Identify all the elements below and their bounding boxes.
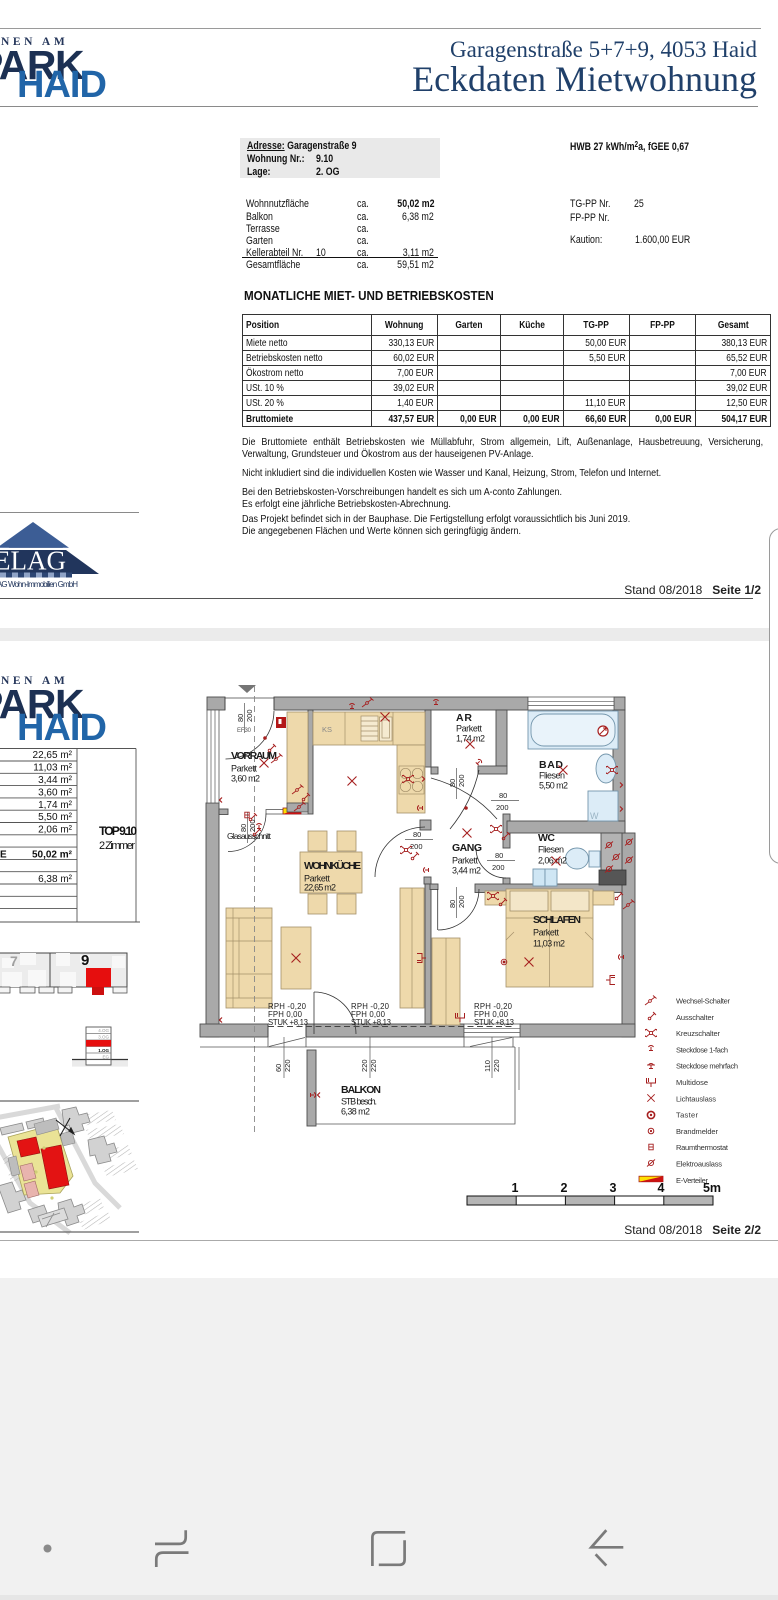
svg-text:Steckdose 1-fach: Steckdose 1-fach: [676, 1045, 728, 1054]
svg-text:STB besch.: STB besch.: [341, 1097, 377, 1107]
svg-text:STUK +8,13: STUK +8,13: [351, 1018, 391, 1027]
svg-text:TOP 9.10: TOP 9.10: [99, 824, 137, 838]
svg-text:60: 60: [274, 1064, 283, 1072]
svg-text:5,50 m2: 5,50 m2: [539, 781, 568, 791]
svg-text:80: 80: [413, 830, 421, 839]
svg-text:80: 80: [448, 779, 457, 787]
svg-text:KS: KS: [322, 725, 332, 734]
svg-text:Kreuzschalter: Kreuzschalter: [676, 1029, 721, 1038]
svg-text:1,74 m²: 1,74 m²: [38, 800, 73, 811]
svg-text:110: 110: [483, 1060, 492, 1072]
svg-text:200: 200: [492, 863, 505, 872]
svg-text:Elektroauslass: Elektroauslass: [676, 1160, 722, 1169]
svg-text:Steckdose mehrfach: Steckdose mehrfach: [676, 1062, 738, 1071]
svg-text:3.OG: 3.OG: [98, 1035, 109, 1040]
svg-text:Lichtauslass: Lichtauslass: [676, 1094, 716, 1103]
svg-text:5,50 m²: 5,50 m²: [38, 812, 73, 823]
svg-text:5m: 5m: [703, 1181, 721, 1195]
svg-text:22,65 m²: 22,65 m²: [33, 750, 73, 761]
svg-text:200: 200: [457, 774, 466, 787]
svg-text:6,38 m²: 6,38 m²: [38, 874, 73, 885]
svg-text:WOHNKÜCHE: WOHNKÜCHE: [304, 859, 361, 872]
svg-text:80: 80: [236, 714, 245, 722]
svg-text:220: 220: [369, 1059, 378, 1072]
svg-text:3: 3: [610, 1181, 617, 1195]
svg-text:BAD: BAD: [539, 759, 563, 771]
svg-text:1,74 m2: 1,74 m2: [456, 734, 485, 744]
svg-text:6,38 m2: 6,38 m2: [341, 1107, 370, 1117]
svg-text:AR: AR: [456, 712, 472, 724]
svg-text:2: 2: [561, 1181, 568, 1195]
svg-text:GANG: GANG: [452, 842, 482, 854]
svg-text:1: 1: [512, 1181, 519, 1195]
svg-text:11,03 m²: 11,03 m²: [33, 763, 72, 774]
svg-text:SCHLAFEN: SCHLAFEN: [533, 914, 581, 926]
svg-text:STUK +8,13: STUK +8,13: [474, 1018, 514, 1027]
svg-text:Taster: Taster: [676, 1111, 699, 1120]
svg-text:3,60 m2: 3,60 m2: [231, 774, 260, 784]
svg-text:Raumthermostat: Raumthermostat: [676, 1143, 729, 1152]
svg-text:200: 200: [496, 803, 509, 812]
svg-text:200: 200: [248, 819, 257, 832]
svg-text:Multidose: Multidose: [676, 1078, 708, 1087]
svg-text:ELAG: ELAG: [0, 546, 66, 576]
svg-text:11,03 m2: 11,03 m2: [533, 939, 565, 949]
svg-text:200: 200: [457, 895, 466, 908]
svg-text:3,44 m2: 3,44 m2: [452, 866, 481, 876]
svg-text:4.OG: 4.OG: [98, 1028, 109, 1033]
svg-text:80: 80: [495, 851, 503, 860]
svg-text:E: E: [0, 849, 7, 860]
svg-text:7: 7: [10, 953, 18, 969]
svg-text:Parkett: Parkett: [456, 724, 482, 734]
svg-text:3,44 m²: 3,44 m²: [38, 775, 73, 786]
svg-text:220: 220: [360, 1059, 369, 1072]
svg-text:Ausschalter: Ausschalter: [676, 1013, 715, 1022]
svg-text:220: 220: [492, 1059, 501, 1072]
svg-text:4: 4: [658, 1181, 665, 1195]
svg-text:Wechsel-Schalter: Wechsel-Schalter: [676, 997, 731, 1006]
svg-text:AG Wohn-Immobilien GmbH: AG Wohn-Immobilien GmbH: [0, 580, 78, 589]
svg-text:Parkett: Parkett: [452, 856, 478, 866]
svg-text:2,06 m²: 2,06 m²: [38, 825, 73, 836]
svg-text:3,60 m²: 3,60 m²: [38, 788, 73, 799]
svg-text:Parkett: Parkett: [533, 928, 559, 938]
svg-text:BALKON: BALKON: [341, 1084, 381, 1096]
svg-text:W: W: [590, 811, 599, 821]
svg-text:200: 200: [245, 709, 254, 722]
svg-text:STUK +8,13: STUK +8,13: [268, 1018, 308, 1027]
svg-text:80: 80: [499, 791, 507, 800]
svg-text:Brandmelder: Brandmelder: [676, 1127, 719, 1136]
svg-text:WC: WC: [538, 832, 555, 844]
svg-text:Fliesen: Fliesen: [538, 845, 564, 855]
svg-text:9: 9: [81, 952, 89, 969]
svg-text:220: 220: [283, 1059, 292, 1072]
svg-text:2 Zimmer: 2 Zimmer: [99, 840, 135, 852]
svg-text:1.OG: 1.OG: [98, 1048, 109, 1053]
svg-text:80: 80: [239, 824, 248, 832]
svg-text:EG: EG: [102, 1055, 109, 1060]
svg-text:Parkett: Parkett: [231, 764, 257, 774]
svg-text:80: 80: [448, 900, 457, 908]
svg-text:50,02 m²: 50,02 m²: [32, 849, 73, 860]
svg-text:22,65 m2: 22,65 m2: [304, 883, 336, 893]
